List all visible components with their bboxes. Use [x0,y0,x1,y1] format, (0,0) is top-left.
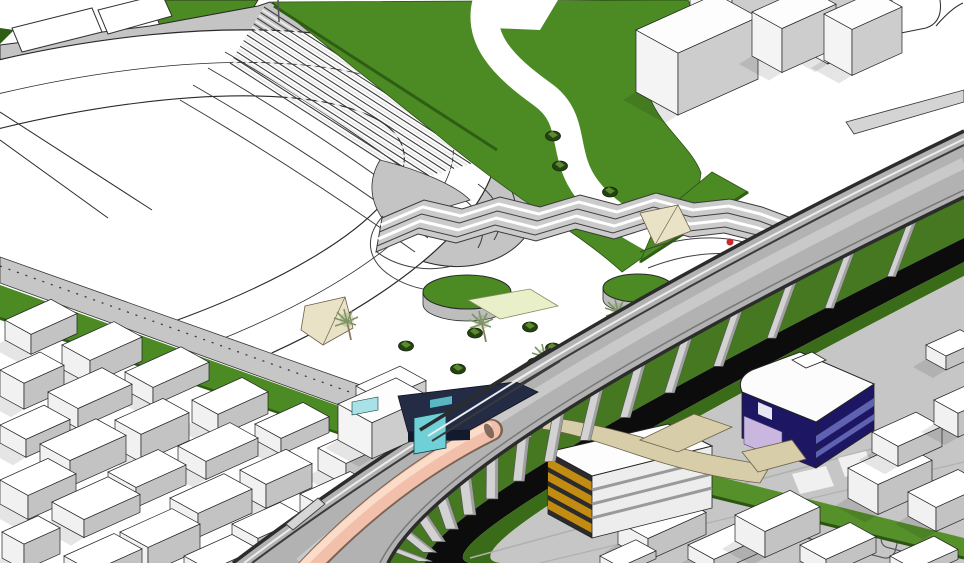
shrub [523,322,538,332]
shrub [603,187,618,197]
model-viewport[interactable] [0,0,964,563]
lawn-patch [0,28,14,44]
shrub [546,131,561,141]
ramp [846,90,964,134]
shrub [468,328,483,338]
site-model-render[interactable] [0,0,964,563]
shrub [399,341,414,351]
shrub [553,161,568,171]
red-marker-dot [727,239,734,246]
shrub [451,364,466,374]
flag-pole [278,0,279,22]
north-east-district [623,0,964,134]
